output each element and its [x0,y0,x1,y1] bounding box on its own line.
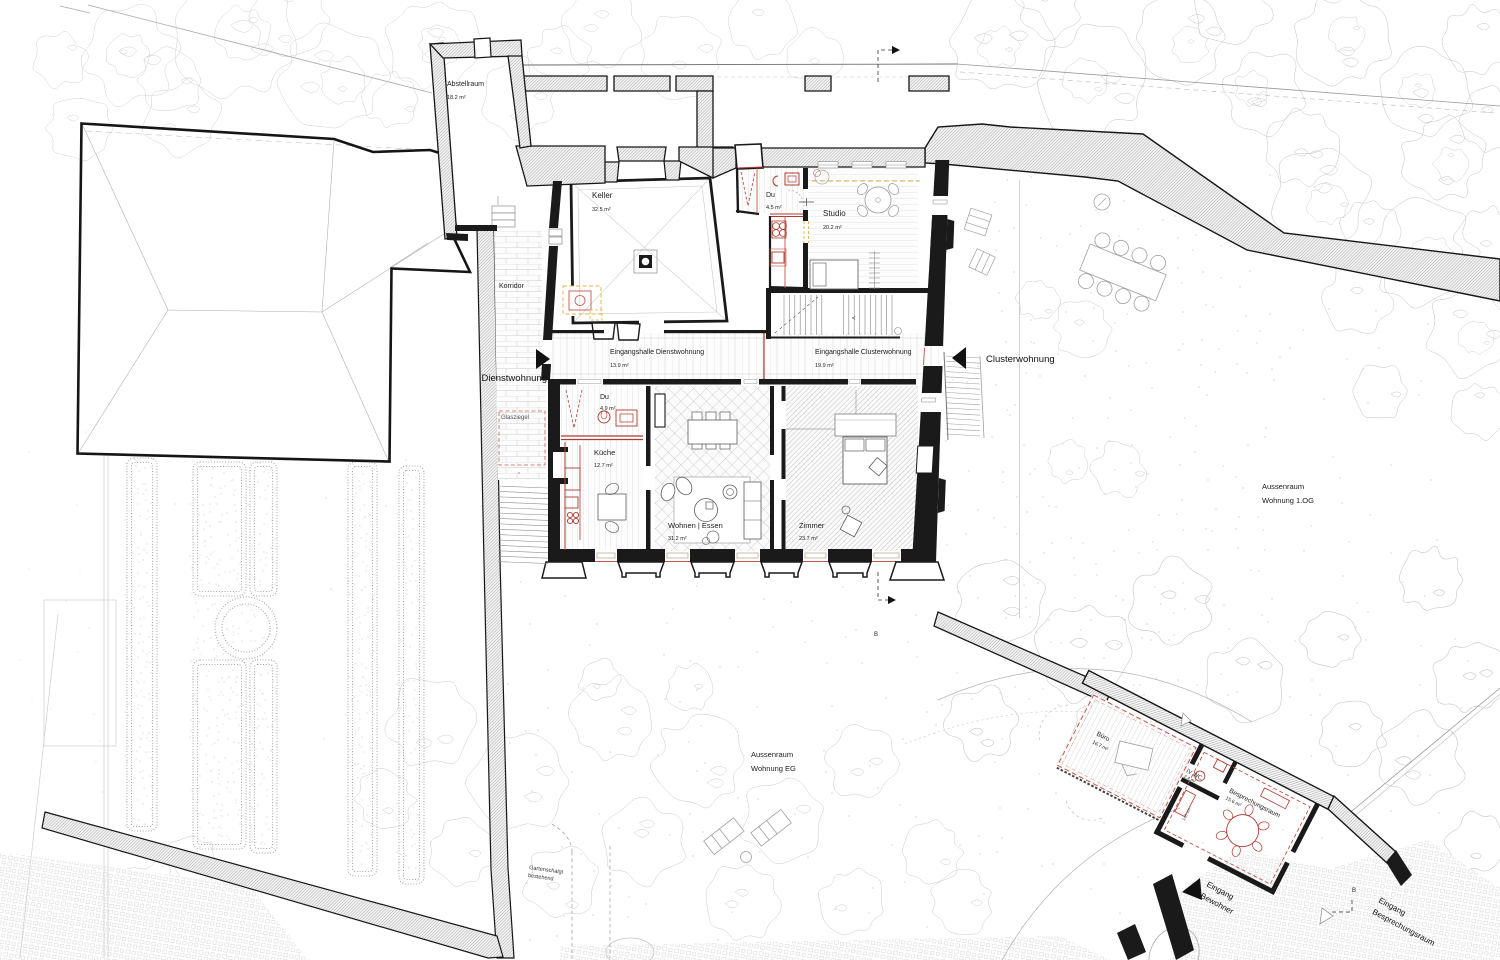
svg-text:4.9 m²: 4.9 m² [600,406,616,412]
svg-text:Du: Du [600,394,609,401]
svg-text:Keller: Keller [592,191,613,200]
svg-text:B: B [874,632,878,638]
svg-text:Korridor: Korridor [499,283,525,290]
svg-text:13.9 m²: 13.9 m² [610,363,629,369]
svg-text:Wohnung EG: Wohnung EG [751,764,796,773]
svg-text:Dienstwohnung: Dienstwohnung [482,373,548,384]
svg-text:Du: Du [766,192,775,199]
svg-text:Eingangshalle Dienstwohnung: Eingangshalle Dienstwohnung [610,349,704,356]
svg-text:Küche: Küche [594,448,615,457]
svg-text:Wohnung 1.OG: Wohnung 1.OG [1262,496,1314,505]
svg-text:4.5 m²: 4.5 m² [766,205,782,211]
svg-text:Abstellraum: Abstellraum [447,81,484,88]
svg-text:Clusterwohnung: Clusterwohnung [986,354,1055,365]
svg-text:Aussenraum: Aussenraum [751,750,793,759]
svg-text:B: B [1352,888,1356,894]
svg-text:Aussenraum: Aussenraum [1262,482,1304,491]
svg-text:Wohnen | Essen: Wohnen | Essen [668,521,723,530]
svg-text:32.5 m²: 32.5 m² [592,207,611,213]
svg-text:18.2 m²: 18.2 m² [447,95,466,101]
svg-text:Studio: Studio [823,209,846,218]
svg-text:<: < [852,316,856,322]
svg-text:12.7 m²: 12.7 m² [594,463,613,469]
svg-text:23.7 m²: 23.7 m² [799,536,818,542]
svg-text:31.2 m²: 31.2 m² [668,536,687,542]
svg-text:Eingangshalle Clusterwohnung: Eingangshalle Clusterwohnung [815,349,912,356]
svg-text:Zimmer: Zimmer [799,521,825,530]
svg-text:20.2 m²: 20.2 m² [823,225,842,231]
svg-text:Glasziegel: Glasziegel [501,415,529,421]
svg-text:19.9 m²: 19.9 m² [815,363,834,369]
